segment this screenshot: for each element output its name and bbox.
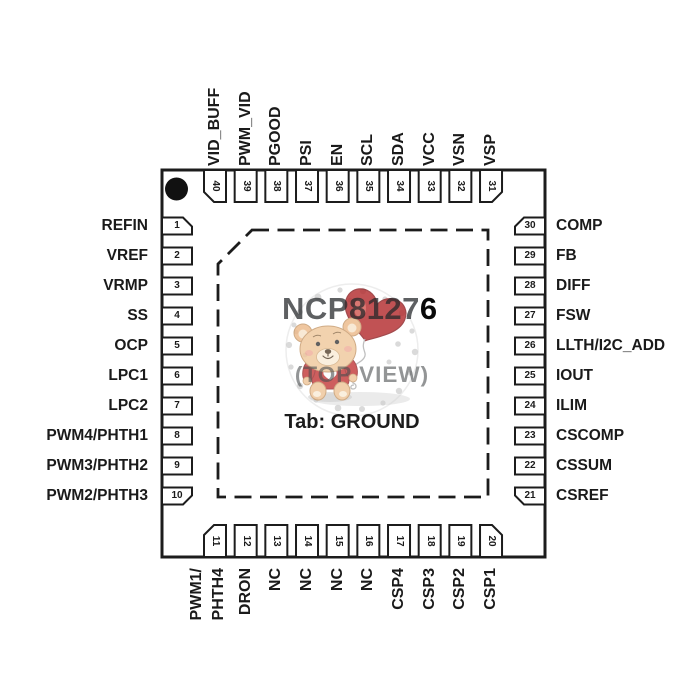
pin-38-label: PGOOD	[266, 54, 286, 166]
pin-4-label: SS	[8, 306, 148, 326]
tab-ground-label: Tab: GROUND	[282, 411, 422, 434]
pin-12-label: DRON	[236, 568, 256, 676]
pin-37-number: 37	[299, 178, 315, 194]
pin-11-label: PWM1/	[187, 568, 207, 676]
pin-20-number: 20	[483, 533, 499, 549]
pin-18-label: CSP3	[420, 568, 440, 676]
pin-34-label: SDA	[389, 54, 409, 166]
pin-10-label: PWM2/PHTH3	[8, 486, 148, 506]
pin-7-label: LPC2	[8, 396, 148, 416]
part-number: NCP81276	[282, 291, 582, 327]
pin-5-number: 5	[162, 340, 192, 352]
pin-33-number: 33	[422, 178, 438, 194]
pin-6-number: 6	[162, 370, 192, 382]
pin-13-number: 13	[268, 533, 284, 549]
pin-22-number: 22	[515, 460, 545, 472]
pin-8-label: PWM4/PHTH1	[8, 426, 148, 446]
pin-32-number: 32	[452, 178, 468, 194]
pin-37-label: PSI	[297, 54, 317, 166]
pin-26-number: 26	[515, 340, 545, 352]
pin-29-number: 29	[515, 250, 545, 262]
pin-14-number: 14	[299, 533, 315, 549]
pin-11-number: 11	[207, 533, 223, 549]
pin-30-number: 30	[515, 220, 545, 232]
pin-40-number: 40	[207, 178, 223, 194]
pin-2-label: VREF	[8, 246, 148, 266]
pin-39-number: 39	[238, 178, 254, 194]
pin-3-number: 3	[162, 280, 192, 292]
pin-18-number: 18	[422, 533, 438, 549]
pin-25-number: 25	[515, 370, 545, 382]
pin-36-number: 36	[330, 178, 346, 194]
pin-8-number: 8	[162, 430, 192, 442]
pin-2-number: 2	[162, 250, 192, 262]
pin-30-label: COMP	[556, 216, 700, 236]
pin-17-number: 17	[391, 533, 407, 549]
pin-19-label: CSP2	[450, 568, 470, 676]
pin-39-label: PWM_VID	[236, 54, 256, 166]
pin-36-label: EN	[328, 54, 348, 166]
pin-5-label: OCP	[8, 336, 148, 356]
pin-20-label: CSP1	[481, 568, 501, 676]
pin-9-number: 9	[162, 460, 192, 472]
pin-19-number: 19	[452, 533, 468, 549]
bear-shadow-inner	[308, 392, 352, 402]
pin-21-number: 21	[515, 490, 545, 502]
pin-32-label: VSN	[450, 54, 470, 166]
pin-1-number: 1	[162, 220, 192, 232]
pin-34-number: 34	[391, 178, 407, 194]
pin-33-label: VCC	[420, 54, 440, 166]
pin-13-label: NC	[266, 568, 286, 676]
pin-23-label: CSCOMP	[556, 426, 700, 446]
pin-11-label-line2: PHTH4	[209, 568, 229, 676]
pin-22-label: CSSUM	[556, 456, 700, 476]
pin-12-number: 12	[238, 533, 254, 549]
pin-7-number: 7	[162, 400, 192, 412]
pin-15-number: 15	[330, 533, 346, 549]
pin-35-number: 35	[360, 178, 376, 194]
top-view-label: (TOP VIEW)	[292, 362, 432, 388]
pin-23-number: 23	[515, 430, 545, 442]
pin-25-label: IOUT	[556, 366, 700, 386]
part-number-last-digit: 6	[420, 291, 438, 326]
pin-1-label: REFIN	[8, 216, 148, 236]
pin-24-number: 24	[515, 400, 545, 412]
pin-17-label: CSP4	[389, 568, 409, 676]
pin-16-number: 16	[360, 533, 376, 549]
pin-9-label: PWM3/PHTH2	[8, 456, 148, 476]
pin-4-number: 4	[162, 310, 192, 322]
pin-1-indicator-dot	[165, 178, 188, 201]
pinout-diagram: NCP81276 (TOP VIEW) Tab: GROUND 40VID_BU…	[0, 0, 700, 700]
part-number-main: NCP8127	[282, 291, 420, 326]
pin-10-number: 10	[162, 490, 192, 502]
pin-24-label: ILIM	[556, 396, 700, 416]
pin-35-label: SCL	[358, 54, 378, 166]
pin-40-label: VID_BUFF	[205, 54, 225, 166]
bear-shadow	[310, 392, 410, 406]
pin-16-label: NC	[358, 568, 378, 676]
pin-6-label: LPC1	[8, 366, 148, 386]
pin-21-label: CSREF	[556, 486, 700, 506]
pin-31-number: 31	[483, 178, 499, 194]
pin-29-label: FB	[556, 246, 700, 266]
pin-15-label: NC	[328, 568, 348, 676]
pin-3-label: VRMP	[8, 276, 148, 296]
pin-31-label: VSP	[481, 54, 501, 166]
pin-38-number: 38	[268, 178, 284, 194]
pin-26-label: LLTH/I2C_ADD	[556, 336, 700, 356]
pin-14-label: NC	[297, 568, 317, 676]
